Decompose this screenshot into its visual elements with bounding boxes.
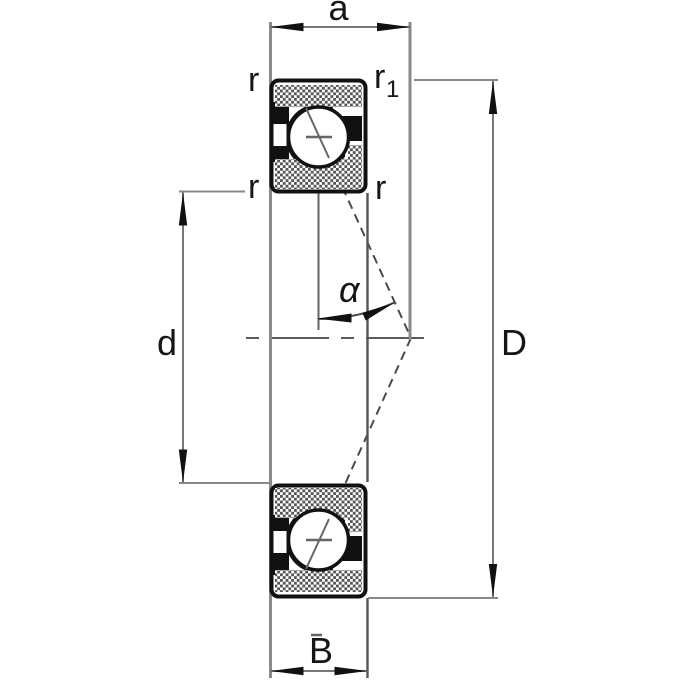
svg-text:r: r [248, 61, 259, 99]
svg-text:α: α [339, 269, 361, 310]
svg-text:B: B [309, 630, 333, 671]
svg-text:d: d [157, 322, 177, 363]
svg-text:D: D [501, 322, 527, 363]
svg-text:a: a [328, 0, 349, 28]
svg-text:r: r [374, 58, 385, 96]
svg-text:r: r [248, 168, 259, 206]
svg-text:r: r [375, 169, 386, 207]
svg-text:1: 1 [386, 76, 399, 103]
